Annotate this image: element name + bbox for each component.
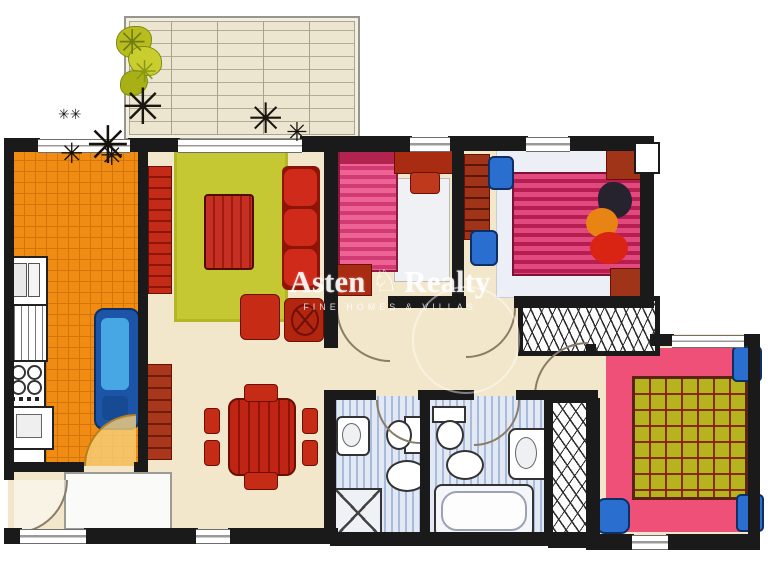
wall [748, 334, 760, 548]
bedroom1-chair [410, 172, 440, 194]
plant-icon: ✳ [286, 120, 308, 146]
wall [300, 136, 412, 152]
dining-chair [244, 472, 278, 490]
window [672, 335, 744, 348]
wall [84, 528, 198, 544]
bedroom2-chair [488, 156, 514, 190]
floor-plan: ✳ ✳ ✳ ✳ ✳ ✳ ✳ ✳✳ ✳ [0, 0, 768, 576]
window [526, 137, 570, 152]
watermark-tagline: FINE HOMES & VILLAS [250, 302, 530, 312]
wall [420, 396, 430, 536]
bedroom2-cushion-red [590, 232, 628, 264]
wall [586, 396, 596, 542]
window [632, 535, 668, 550]
dining-chair [244, 384, 278, 402]
shower-tray [334, 488, 382, 538]
window [410, 137, 450, 152]
plant-icon: ✳ [60, 140, 83, 168]
toilet [432, 406, 466, 448]
wall [324, 390, 336, 542]
window [178, 139, 302, 153]
window [20, 529, 86, 544]
bidet [446, 450, 484, 480]
watermark-brand-right: Realty [404, 264, 490, 300]
bedroom2-nightstand [610, 268, 644, 298]
kitchen-living-wall [138, 150, 148, 466]
washbasin [336, 416, 370, 456]
washing-machine [8, 406, 54, 450]
wall [4, 138, 14, 480]
wall [666, 534, 760, 550]
wall [324, 138, 338, 348]
dining-chair [302, 440, 318, 466]
coffee-table [204, 194, 254, 270]
bedroom1-bed [338, 150, 398, 272]
dining-chair [302, 408, 318, 434]
plant-icon: ✳ [100, 142, 123, 170]
bedroom3-chair [596, 498, 630, 534]
wall [330, 532, 596, 546]
watermark: Asten ♘ Realty FINE HOMES & VILLAS [250, 264, 530, 312]
wall [544, 396, 552, 536]
plant-icon: ✳ [248, 98, 283, 140]
watermark-brand-left: Asten [290, 264, 366, 300]
kitchen-table [94, 308, 140, 430]
dining-table [228, 398, 296, 476]
kitchen-wall [4, 462, 84, 472]
dining-chair [204, 408, 220, 434]
wall [228, 528, 338, 544]
bedroom2-wardrobe [464, 154, 490, 240]
sideboard [146, 364, 172, 460]
wall [514, 296, 654, 308]
plant-icon: ✳✳ [58, 108, 81, 122]
wall [586, 344, 596, 356]
bedroom2-stool [470, 230, 498, 266]
horse-logo-icon: ♘ [371, 267, 398, 297]
bedroom3-bed [632, 376, 748, 500]
entrance-rug [64, 472, 172, 530]
dining-chair [204, 440, 220, 466]
bathtub [434, 484, 534, 538]
bedroom1-desk [394, 150, 454, 174]
washbasin [508, 428, 548, 480]
window [196, 529, 230, 544]
sideboard [148, 166, 172, 294]
wall [128, 138, 180, 152]
wall [650, 334, 674, 346]
wall-niche [634, 142, 660, 174]
